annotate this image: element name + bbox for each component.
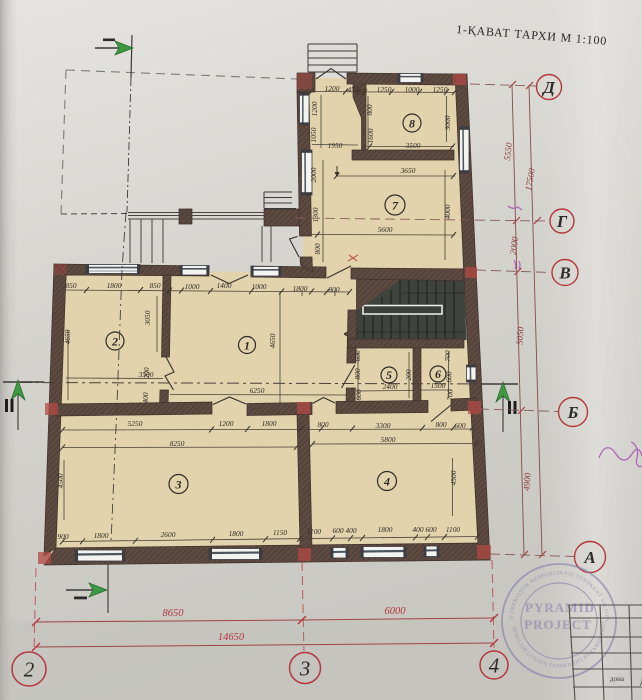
svg-text:Г: Г bbox=[556, 212, 568, 231]
svg-text:1100: 1100 bbox=[446, 525, 461, 534]
svg-text:1800: 1800 bbox=[293, 284, 308, 293]
svg-text:700: 700 bbox=[446, 389, 455, 400]
svg-text:800: 800 bbox=[353, 368, 362, 379]
svg-text:800: 800 bbox=[365, 104, 374, 115]
svg-text:7: 7 bbox=[392, 199, 399, 213]
svg-text:1800: 1800 bbox=[378, 525, 393, 534]
svg-text:800: 800 bbox=[317, 420, 328, 429]
svg-text:450: 450 bbox=[347, 85, 358, 94]
svg-text:3: 3 bbox=[175, 478, 182, 492]
svg-text:8: 8 bbox=[409, 117, 415, 131]
svg-text:1000: 1000 bbox=[185, 282, 200, 291]
svg-text:3050: 3050 bbox=[143, 310, 152, 326]
svg-text:4500: 4500 bbox=[56, 473, 65, 488]
svg-text:1: 1 bbox=[244, 339, 250, 353]
svg-text:6: 6 bbox=[435, 367, 441, 381]
svg-text:400: 400 bbox=[345, 526, 356, 535]
svg-text:1000: 1000 bbox=[405, 85, 420, 94]
svg-text:2000: 2000 bbox=[309, 167, 318, 182]
svg-text:400: 400 bbox=[141, 392, 150, 403]
svg-text:Б: Б bbox=[567, 403, 579, 422]
svg-text:PROJECT: PROJECT bbox=[524, 617, 592, 632]
svg-text:1050: 1050 bbox=[309, 127, 318, 142]
svg-text:1250: 1250 bbox=[377, 85, 392, 94]
svg-text:2: 2 bbox=[111, 335, 118, 349]
svg-text:1800: 1800 bbox=[94, 531, 109, 540]
svg-text:800: 800 bbox=[313, 243, 322, 254]
svg-text:6000: 6000 bbox=[385, 606, 407, 617]
svg-text:1200: 1200 bbox=[219, 419, 234, 428]
svg-text:800: 800 bbox=[328, 285, 339, 294]
svg-text:600: 600 bbox=[332, 526, 343, 535]
svg-text:800: 800 bbox=[435, 420, 446, 429]
svg-text:1400: 1400 bbox=[217, 281, 232, 290]
svg-text:850: 850 bbox=[65, 281, 76, 290]
svg-text:400: 400 bbox=[412, 525, 423, 534]
svg-text:1600: 1600 bbox=[366, 128, 375, 143]
svg-text:1000: 1000 bbox=[252, 282, 267, 291]
svg-text:1200: 1200 bbox=[325, 84, 340, 93]
svg-text:600: 600 bbox=[425, 525, 436, 534]
svg-text:4: 4 bbox=[489, 654, 500, 678]
svg-text:5800: 5800 bbox=[381, 435, 396, 444]
svg-text:1950: 1950 bbox=[328, 141, 343, 150]
svg-text:4900: 4900 bbox=[521, 472, 532, 491]
svg-text:600: 600 bbox=[454, 421, 465, 430]
svg-text:4000: 4000 bbox=[443, 204, 452, 219]
svg-text:900: 900 bbox=[57, 532, 68, 541]
svg-text:1800: 1800 bbox=[107, 281, 122, 290]
svg-text:5: 5 bbox=[386, 368, 392, 382]
svg-text:дона: дона bbox=[610, 675, 625, 683]
svg-text:1100: 1100 bbox=[307, 527, 322, 536]
svg-text:4650: 4650 bbox=[63, 329, 72, 344]
svg-text:5250: 5250 bbox=[128, 419, 143, 428]
svg-text:PYRAMID: PYRAMID bbox=[525, 600, 595, 615]
svg-text:850: 850 bbox=[149, 281, 160, 290]
svg-text:4650: 4650 bbox=[268, 333, 277, 348]
svg-text:2600: 2600 bbox=[161, 530, 176, 539]
svg-text:6250: 6250 bbox=[250, 386, 265, 395]
svg-text:14650: 14650 bbox=[218, 632, 245, 643]
svg-text:В: В bbox=[558, 264, 570, 283]
svg-text:3: 3 bbox=[299, 657, 311, 681]
svg-text:4: 4 bbox=[383, 475, 390, 489]
svg-text:3000: 3000 bbox=[443, 115, 452, 131]
svg-text:1300: 1300 bbox=[311, 207, 320, 222]
svg-text:200: 200 bbox=[404, 369, 413, 380]
svg-text:700: 700 bbox=[443, 350, 452, 361]
svg-text:200: 200 bbox=[142, 367, 151, 378]
svg-text:1800: 1800 bbox=[262, 419, 277, 428]
svg-text:5050: 5050 bbox=[514, 326, 525, 345]
svg-text:3300: 3300 bbox=[375, 421, 391, 430]
svg-text:5600: 5600 bbox=[378, 225, 393, 234]
svg-text:2: 2 bbox=[24, 658, 35, 682]
svg-text:2000: 2000 bbox=[508, 236, 520, 255]
svg-text:600: 600 bbox=[353, 350, 362, 361]
svg-text:3650: 3650 bbox=[400, 166, 416, 175]
svg-text:1800: 1800 bbox=[229, 529, 244, 538]
svg-text:3500: 3500 bbox=[405, 141, 421, 150]
svg-text:8650: 8650 bbox=[163, 608, 185, 619]
svg-text:1150: 1150 bbox=[273, 528, 288, 537]
svg-text:А: А bbox=[583, 548, 595, 567]
svg-text:600: 600 bbox=[354, 389, 363, 400]
svg-text:8250: 8250 bbox=[170, 439, 185, 448]
svg-text:1200: 1200 bbox=[310, 101, 319, 116]
svg-text:Д: Д bbox=[541, 78, 556, 97]
svg-text:4500: 4500 bbox=[449, 470, 458, 485]
